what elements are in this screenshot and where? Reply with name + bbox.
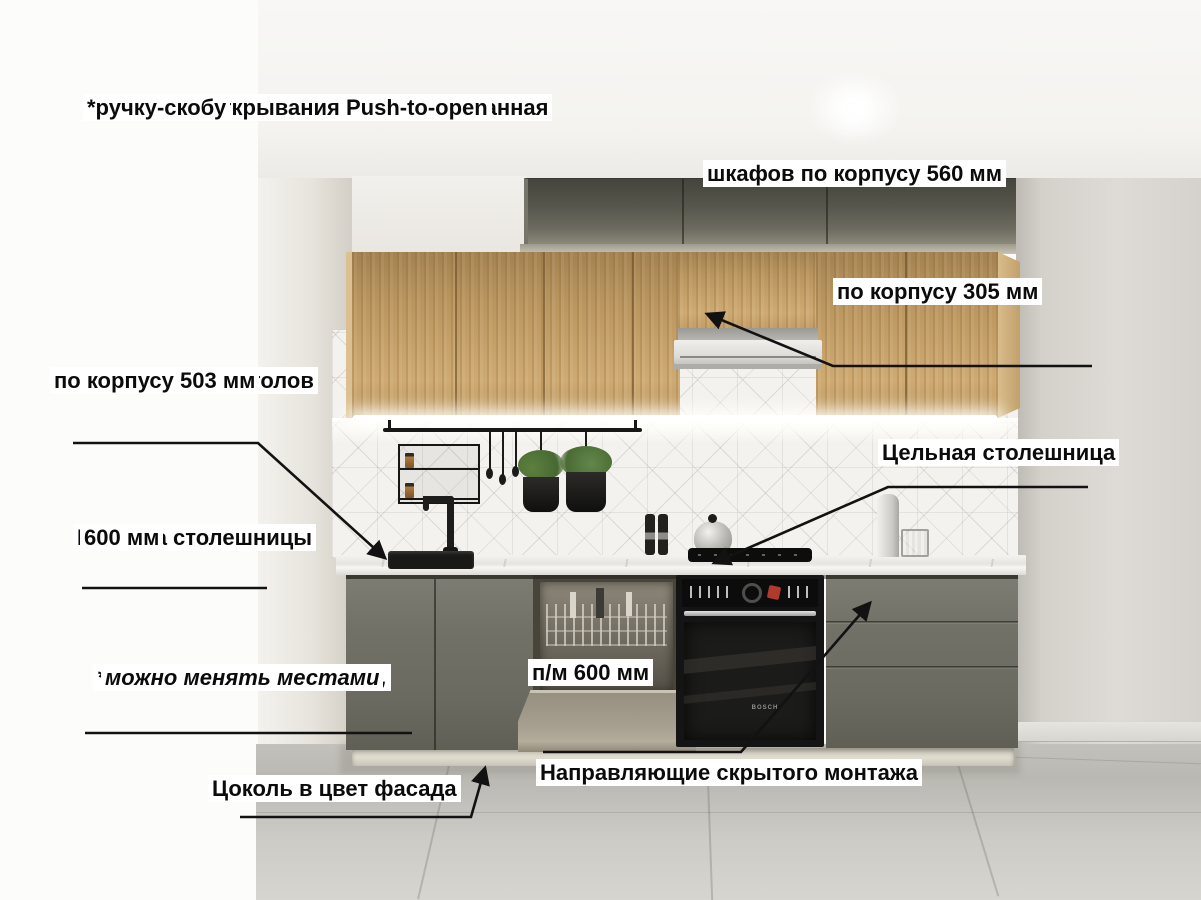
spice-grinder: [658, 514, 668, 555]
note-line: можно менять местами: [101, 664, 383, 691]
dish-silhouette: [626, 592, 632, 616]
note-line: Цельная столешница: [878, 439, 1119, 466]
spice-grinder: [645, 514, 655, 555]
hanging-planter-pot: [566, 472, 606, 512]
wood-cabinets-left: [352, 252, 680, 418]
oven-door-glass: [684, 622, 816, 740]
rail-mount: [388, 420, 391, 429]
hanging-utensil: [489, 432, 491, 470]
cabinet-door-gap: [905, 252, 907, 416]
hanging-planter-pot: [523, 477, 559, 512]
drawer-cabinet: [826, 575, 1018, 748]
wood-cabinet-side-panel: [998, 252, 1020, 418]
shelf-bar: [400, 468, 478, 470]
dish-silhouette: [570, 592, 576, 618]
note-line: 600 мм: [80, 524, 163, 551]
cabinet-door-gap: [682, 179, 684, 244]
oven-glass-reflection: [684, 642, 816, 676]
drawer-gap: [826, 666, 1018, 669]
note-line: Направляющие скрытого монтажа: [536, 759, 922, 786]
oven-glass-reflection: [684, 678, 816, 706]
drawer-gap: [826, 621, 1018, 624]
wood-cabinets-right: [816, 252, 998, 418]
cooktop: [688, 548, 812, 562]
kitchen-annotated-render: BOSCH Нижние шкафы — ручка интегрированн…: [0, 0, 1201, 900]
wood-cabinet-side-panel: [346, 252, 352, 418]
right-baseboard: [1016, 722, 1201, 742]
kettle-lid-knob: [708, 514, 717, 523]
cabinet-door-gap: [632, 252, 634, 416]
herb-plant: [518, 450, 564, 480]
glass-basket: [901, 529, 929, 557]
sink: [388, 551, 474, 569]
under-cabinet-led-strip: [352, 415, 998, 423]
oven-panel-marks: [690, 586, 730, 598]
cutting-board: [877, 494, 899, 557]
upper-wall-cabinets: [524, 178, 1016, 244]
wall-above-cabinets: [352, 176, 526, 256]
range-hood-duct: [678, 328, 818, 340]
hanging-utensil: [502, 432, 504, 476]
rail-mount: [634, 420, 637, 429]
oven-handle: [684, 611, 816, 616]
range-hood-vent-slot: [680, 356, 816, 358]
oven-brand-logo: BOSCH: [735, 704, 795, 712]
utensil-head: [499, 474, 506, 485]
spice-shelf: [398, 444, 480, 504]
cabinet-door-gap: [826, 179, 828, 244]
note-line: шкафов по корпусу 560 мм: [703, 160, 1006, 187]
ceiling-spotlight: [846, 102, 860, 116]
wood-cabinet-above-hood: [678, 252, 818, 332]
floor-grout-line: [256, 812, 1201, 813]
hanging-utensil: [515, 432, 517, 468]
base-cabinet-left: [346, 575, 533, 750]
oven-dial: [742, 583, 762, 603]
dish-silhouette: [596, 588, 604, 618]
oven-panel-marks: [788, 586, 812, 598]
range-hood-lip: [674, 364, 822, 369]
faucet-outlet: [423, 496, 429, 511]
note-line: по корпусу 305 мм: [833, 278, 1042, 305]
dishwasher-open-door: [518, 690, 696, 742]
utensil-head: [486, 468, 493, 479]
under-counter-shadow: [346, 575, 1018, 579]
note-line: п/м 600 мм: [528, 659, 653, 686]
cabinet-door-gap: [543, 252, 545, 416]
range-hood: [674, 340, 822, 364]
dishwasher-door-edge: [518, 742, 696, 752]
cabinet-door-gap: [455, 252, 457, 416]
note-line: Цоколь в цвет фасада: [208, 775, 461, 802]
note-line: по корпусу 503 мм: [50, 367, 259, 394]
utensil-rail: [383, 428, 642, 432]
faucet-column: [447, 496, 454, 554]
left-foreground-wall: [0, 0, 258, 900]
note-line: *ручку-скобу: [83, 94, 230, 121]
dishwasher-rack: [546, 604, 667, 646]
cabinet-door-gap: [434, 579, 436, 750]
